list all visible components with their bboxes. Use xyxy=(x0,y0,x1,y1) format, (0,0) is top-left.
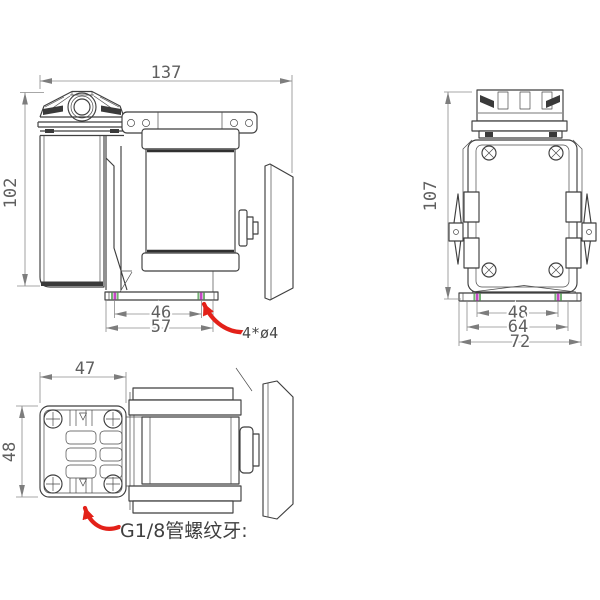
screw xyxy=(44,410,62,428)
top-view: 47 48 G1/8管螺纹牙: xyxy=(0,359,293,542)
mount-hole-callout: 4*ø4 xyxy=(204,304,278,342)
screw xyxy=(44,475,62,493)
pump-head-top xyxy=(40,406,126,497)
pump-body xyxy=(40,136,104,288)
screw xyxy=(549,146,563,160)
mount-hole-mark xyxy=(111,293,119,300)
fan-cover xyxy=(265,164,293,300)
foot-pad xyxy=(41,282,103,287)
dim-overall-height: 107 xyxy=(421,181,441,212)
base-plate xyxy=(105,292,218,300)
drawing-canvas: 137 102 46 57 4*ø4 xyxy=(0,0,600,600)
pump-head xyxy=(38,92,126,136)
motor-top xyxy=(126,368,259,513)
dim-head-width: 47 xyxy=(75,359,95,379)
pump-housing xyxy=(463,140,582,292)
mount-holes-label: 4*ø4 xyxy=(242,324,278,342)
dim-overall-length: 137 xyxy=(151,63,182,83)
dim-base-width: 72 xyxy=(510,332,530,352)
mount-hole-mark xyxy=(473,294,481,301)
red-arrow xyxy=(85,508,119,529)
screw xyxy=(482,263,496,277)
crankcase xyxy=(106,136,127,291)
screw xyxy=(482,146,496,160)
dim-overall-height: 102 xyxy=(1,178,21,209)
dim-base-length: 57 xyxy=(151,317,171,337)
motor-shaft xyxy=(239,210,258,246)
port-thread-label: G1/8管螺纹牙: xyxy=(120,520,248,542)
side-view: 137 102 46 57 4*ø4 xyxy=(1,63,293,342)
motor xyxy=(120,129,258,292)
dim-head-depth: 48 xyxy=(0,442,20,462)
front-view: 107 48 64 72 xyxy=(421,90,596,352)
mount-hole-mark xyxy=(197,293,205,300)
screw xyxy=(104,410,122,428)
motor-shaft xyxy=(240,427,253,473)
mount-hole-mark xyxy=(554,294,562,301)
screw xyxy=(549,263,563,277)
terminal-block xyxy=(472,90,567,138)
lead-wire xyxy=(236,368,252,391)
fan-cover-top xyxy=(263,381,293,519)
technical-drawing: 137 102 46 57 4*ø4 xyxy=(0,0,600,600)
